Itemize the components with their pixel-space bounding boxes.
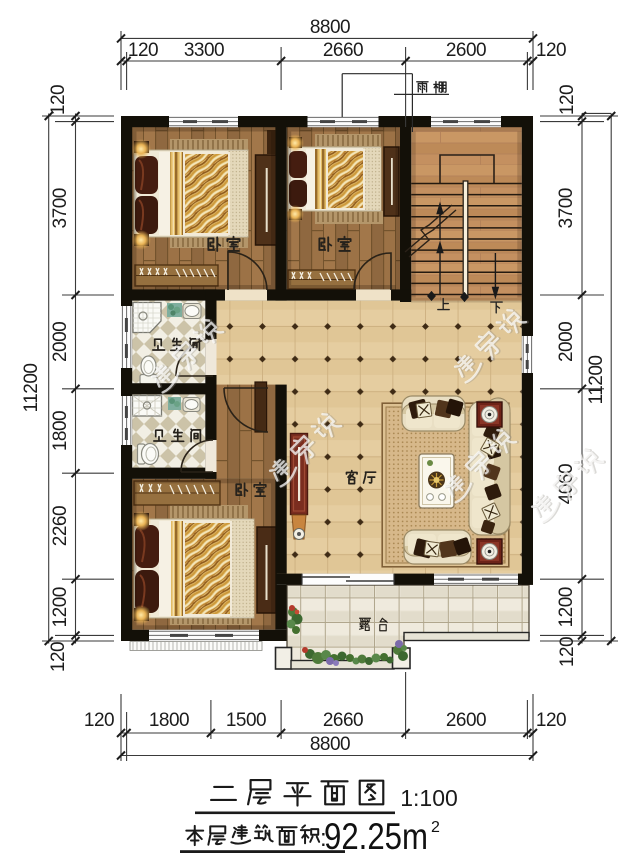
svg-text:1800: 1800 [50, 411, 71, 451]
svg-text:3300: 3300 [184, 40, 224, 61]
svg-text:2000: 2000 [50, 322, 71, 362]
svg-text:120: 120 [536, 40, 566, 61]
svg-text:3700: 3700 [556, 188, 577, 228]
svg-text:2660: 2660 [323, 710, 363, 731]
svg-text:2660: 2660 [323, 40, 363, 61]
svg-text:120: 120 [128, 40, 158, 61]
svg-text:92.25m: 92.25m [324, 816, 428, 853]
svg-text:1200: 1200 [50, 587, 71, 627]
svg-text:11200: 11200 [21, 364, 42, 413]
svg-text:120: 120 [536, 710, 566, 731]
svg-text:11200: 11200 [586, 356, 607, 405]
svg-text:3700: 3700 [50, 188, 71, 228]
svg-text:1800: 1800 [149, 710, 189, 731]
svg-text:120: 120 [48, 642, 69, 672]
svg-text:1500: 1500 [226, 710, 266, 731]
svg-text:2000: 2000 [556, 322, 577, 362]
svg-text:8800: 8800 [310, 17, 350, 38]
svg-text:2260: 2260 [50, 506, 71, 546]
svg-text:1:100: 1:100 [400, 785, 458, 811]
svg-text:2600: 2600 [446, 40, 486, 61]
svg-text:8800: 8800 [310, 734, 350, 755]
svg-text:2600: 2600 [446, 710, 486, 731]
svg-text:2: 2 [431, 819, 440, 836]
svg-text:120: 120 [557, 637, 578, 667]
svg-text:1200: 1200 [556, 587, 577, 627]
svg-text:120: 120 [84, 710, 114, 731]
svg-text:120: 120 [48, 85, 69, 115]
svg-text:120: 120 [557, 85, 578, 115]
